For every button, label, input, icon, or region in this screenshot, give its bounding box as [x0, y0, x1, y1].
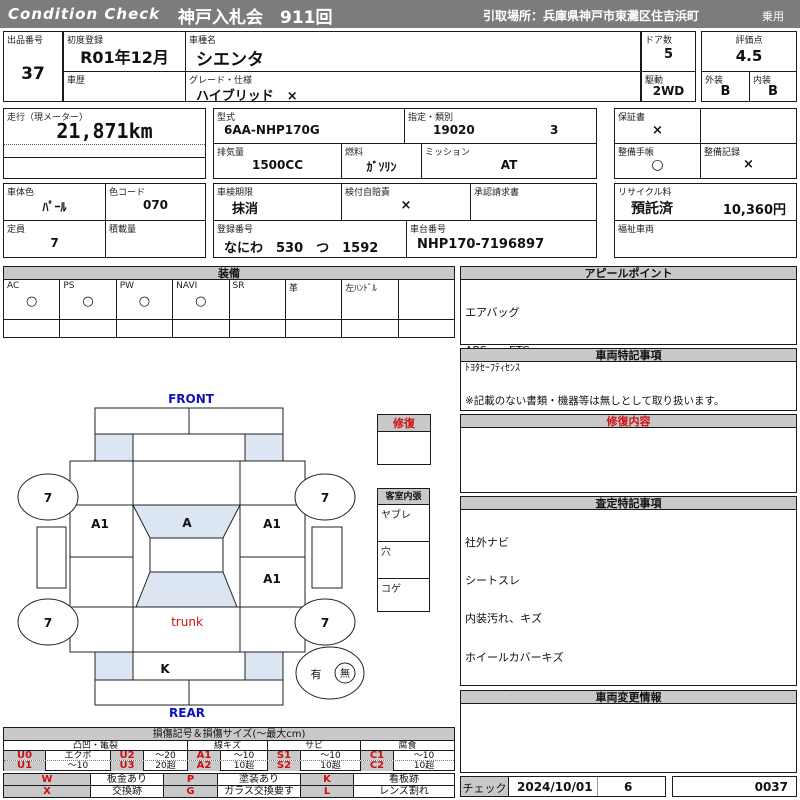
tire-size-fl: 7	[44, 491, 52, 505]
legend-desc: 看板跡	[354, 774, 454, 785]
interior-grade-box: 内装 B	[749, 71, 797, 102]
vehicle-category: 乗用	[762, 8, 784, 24]
spare-tire-marker	[296, 647, 364, 699]
sheet-number-box: 0037	[672, 776, 797, 797]
welfare-box: 福祉車両	[614, 220, 797, 258]
legend-group: 凸凹・亀裂	[4, 741, 188, 750]
damage-legend-row-1: U0 エクボ U2 ～20 A1 ～10 S1 ～10 C1 ～10	[4, 751, 454, 761]
cabin-interior-header: 客室内張	[378, 489, 429, 505]
vehicle-notes-footnote: ※記載のない書類・機器等は無しとして取り扱います。	[465, 393, 724, 408]
assessment-line: 社外ナビ	[465, 537, 792, 550]
model-code-box: 型式 6AA-NHP170G	[213, 108, 405, 144]
legend-code: U2	[111, 751, 144, 760]
left-side-step	[37, 527, 66, 588]
assessment-line: ホイールカバーキズ	[465, 652, 792, 665]
auction-sheet: Condition Check 神戸入札会 911回 引取場所：兵庫県神戸市東灘…	[0, 0, 800, 800]
inspection-label: 車検期限	[217, 185, 253, 198]
model-code-label: 型式	[217, 110, 235, 123]
sheet-number-value: 0037	[755, 780, 788, 794]
body-color-box: 車体色 ﾊﾟｰﾙ	[3, 183, 106, 221]
history-box: 車歴	[63, 71, 186, 102]
brand-logo: Condition Check	[8, 5, 160, 23]
recycle-status-value: 預託済	[631, 198, 673, 218]
equipment-label: PS	[63, 281, 74, 291]
legend-code: U0	[4, 751, 46, 760]
capacity-value: 7	[4, 236, 105, 250]
warranty-value: ×	[615, 123, 700, 138]
displacement-value: 1500CC	[214, 158, 341, 172]
maintenance-book-box: 整備手帳 ○	[614, 143, 701, 179]
front-pillar-left-shaded	[95, 434, 133, 461]
mileage-divider-solid	[4, 157, 205, 158]
interior-row-tear: ヤブレ	[378, 505, 429, 542]
equipment-value: ○	[173, 294, 228, 309]
equipment-table: 装備 AC ○ PS ○ PW ○ NAVI ○ SR 革	[3, 266, 455, 338]
equipment-cell-lhd: 左ﾊﾝﾄﾞﾙ	[342, 280, 398, 319]
damage-legend-title: 損傷記号＆損傷サイズ(～最大cm)	[4, 728, 454, 741]
displacement-box: 排気量 1500CC	[213, 143, 342, 179]
capacity-box: 定員 7	[3, 220, 106, 258]
rear-pillar-right-shaded	[245, 652, 283, 680]
registration-number-box: 登録番号 なにわ 530 つ 1592	[213, 220, 407, 258]
legend-desc: 交換跡	[91, 786, 164, 797]
check-date-value: 2024/10/01	[517, 780, 593, 794]
equipment-label: PW	[120, 281, 134, 291]
mileage-divider-dotted	[4, 144, 205, 145]
body-color-label: 車体色	[7, 185, 34, 198]
registration-number-value: なにわ 530 つ 1592	[224, 237, 378, 256]
class-box: 指定・類別 19020 3	[404, 108, 597, 144]
left-front-door-mark: A1	[91, 517, 109, 531]
hood	[133, 434, 245, 461]
rear-window-area	[136, 572, 237, 607]
spare-yes-label: 有	[311, 667, 322, 681]
color-code-value: 070	[106, 198, 205, 212]
right-rear-door-mark: A1	[263, 572, 281, 586]
recycle-fee-label: リサイクル料	[618, 185, 672, 198]
change-info-section: 車両変更情報	[460, 690, 797, 773]
legend-desc: 塗装あり	[218, 774, 301, 785]
legend-desc: 10超	[301, 761, 361, 771]
legend-desc: 板金あり	[91, 774, 164, 785]
check-inspector-value: 6	[624, 780, 632, 794]
trunk-label: trunk	[171, 615, 203, 629]
doors-box: ドア数 5	[641, 31, 696, 72]
assessment-notes-section: 査定特記事項 社外ナビ シートスレ 内装汚れ、キズ ホイールカバーキズ パンク修…	[460, 496, 797, 686]
equipment-label: 左ﾊﾝﾄﾞﾙ	[345, 281, 377, 294]
approval-label: 承認請求書	[474, 185, 519, 198]
right-front-door-mark: A1	[263, 517, 281, 531]
class-label: 指定・類別	[408, 110, 453, 123]
chassis-number-label: 車台番号	[410, 222, 446, 235]
legend-code: W	[4, 774, 91, 785]
legend-group: 線キズ	[188, 741, 268, 750]
exterior-grade-box: 外装 B	[701, 71, 750, 102]
legend-code: S1	[268, 751, 301, 760]
vehicle-notes-header: 車両特記事項	[461, 349, 796, 362]
transmission-box: ミッション AT	[421, 143, 597, 179]
legend-code: L	[301, 786, 354, 797]
tire-size-rr: 7	[321, 616, 329, 630]
lot-number-box: 出品番号 37	[3, 31, 63, 102]
inspection-value: 抹消	[232, 198, 258, 217]
legend-desc: レンズ割れ	[354, 786, 454, 797]
rear-label: REAR	[169, 706, 205, 720]
mileage-box: 走行（現メーター） 21,871km	[3, 108, 206, 179]
mileage-value: 21,871km	[4, 119, 205, 143]
vehicle-notes-section: 車両特記事項 ﾄﾖﾀｾｰﾌﾃｨｾﾝｽ ※記載のない書類・機器等は無しとして取り扱…	[460, 348, 797, 411]
model-value: シエンタ	[196, 45, 264, 70]
windshield-mark: A	[182, 516, 192, 530]
equipment-cell-ps: PS ○	[60, 280, 116, 319]
roof-area	[150, 538, 223, 572]
rear-pillar-left-shaded	[95, 652, 133, 680]
inspection-box: 車検期限 抹消	[213, 183, 342, 221]
legend-code: K	[301, 774, 354, 785]
grade-value: ハイブリッド ×	[196, 85, 298, 104]
equipment-row-2	[4, 319, 454, 338]
legend-code: C1	[361, 751, 394, 760]
body-color-value: ﾊﾟｰﾙ	[4, 198, 105, 215]
load-box: 積載量	[105, 220, 206, 258]
legend-code: C2	[361, 761, 394, 771]
capacity-label: 定員	[7, 222, 25, 235]
drive-value: 2WD	[642, 84, 695, 98]
legend-desc: 10超	[394, 761, 454, 771]
damage-legend-table: 損傷記号＆損傷サイズ(～最大cm) 凸凹・亀裂 線キズ サビ 腐食 U0 エクボ…	[3, 727, 455, 771]
class-value-1: 19020	[433, 123, 475, 137]
class-value-2: 3	[550, 123, 558, 137]
insurance-value: ×	[342, 198, 470, 213]
assessment-line: シートスレ	[465, 575, 792, 588]
appeal-points-header: アピールポイント	[461, 267, 796, 280]
doors-label: ドア数	[645, 33, 672, 46]
vehicle-notes-line: ﾄﾖﾀｾｰﾌﾃｨｾﾝｽ	[461, 362, 796, 377]
legend-code: U3	[111, 761, 144, 771]
equipment-value: ○	[117, 294, 172, 309]
auction-title: 神戸入札会 911回	[178, 3, 333, 28]
history-label: 車歴	[67, 73, 85, 86]
registration-number-label: 登録番号	[217, 222, 253, 235]
recycle-fee-box: リサイクル料 預託済 10,360円	[614, 183, 797, 221]
legend-code: S2	[268, 761, 301, 771]
equipment-value: ○	[60, 294, 115, 309]
interior-row-burn: コゲ	[378, 579, 429, 613]
fuel-label: 燃料	[345, 145, 363, 158]
insurance-box: 検付自賠責 ×	[341, 183, 471, 221]
check-label-box: チェック	[460, 776, 509, 797]
spare-no-label: 無	[340, 667, 350, 680]
rear-panel-mark: K	[160, 662, 170, 676]
change-info-header: 車両変更情報	[461, 691, 796, 704]
legend-code: P	[164, 774, 218, 785]
approval-box: 承認請求書	[470, 183, 597, 221]
warranty-box: 保証書 ×	[614, 108, 701, 144]
legend-code: X	[4, 786, 91, 797]
appeal-line: エアバッグ	[465, 307, 792, 320]
equipment-label: SR	[233, 281, 245, 291]
transmission-value: AT	[422, 158, 596, 172]
legend-desc: ～10	[394, 751, 454, 760]
score-box: 評価点 4.5	[701, 31, 797, 72]
check-label: チェック	[461, 780, 508, 796]
equipment-label: AC	[7, 281, 19, 291]
tire-size-fr: 7	[321, 491, 329, 505]
displacement-label: 排気量	[217, 145, 244, 158]
drive-box: 駆動 2WD	[641, 71, 696, 102]
legend-desc: ～10	[301, 751, 361, 760]
first-registration-value: R01年12月	[64, 44, 185, 68]
insurance-label: 検付自賠責	[345, 185, 390, 198]
warranty-label: 保証書	[618, 110, 645, 123]
legend-desc: ～10	[46, 761, 111, 771]
right-side-step	[312, 527, 342, 588]
equipment-header: 装備	[4, 267, 454, 280]
warranty-extra-box	[700, 108, 797, 144]
load-label: 積載量	[109, 222, 136, 235]
assessment-line: 内装汚れ、キズ	[465, 613, 792, 626]
score-value: 4.5	[702, 47, 796, 65]
front-label: FRONT	[168, 392, 215, 406]
recycle-fee-value: 10,360円	[723, 199, 786, 218]
legend-code: A2	[188, 761, 221, 771]
legend-desc: 10超	[221, 761, 268, 771]
assessment-notes-header: 査定特記事項	[461, 497, 796, 510]
damage-legend-table-2: W 板金あり P 塗装あり K 看板跡 X 交換跡 G ガラス交換要す L レン…	[3, 773, 455, 798]
damage-legend-groups: 凸凹・亀裂 線キズ サビ 腐食	[4, 741, 454, 751]
equipment-cell-ac: AC ○	[4, 280, 60, 319]
maintenance-record-value: ×	[701, 157, 796, 172]
transmission-label: ミッション	[425, 145, 470, 158]
check-date-box: 2024/10/01 6	[508, 776, 666, 797]
legend-code: U1	[4, 761, 46, 771]
front-pillar-right-shaded	[245, 434, 283, 461]
chassis-number-box: 車台番号 NHP170-7196897	[406, 220, 597, 258]
lot-number-value: 37	[4, 64, 62, 84]
legend-group: サビ	[268, 741, 361, 750]
legend-code: A1	[188, 751, 221, 760]
cabin-interior-box: 客室内張 ヤブレ 穴 コゲ	[377, 488, 430, 612]
legend-desc: ガラス交換要す	[218, 786, 301, 797]
appeal-points-section: アピールポイント エアバッグ ABS ETC プッシュスタート 左側パワースライ…	[460, 266, 797, 345]
equipment-cell-extra	[399, 280, 454, 319]
damage-legend-row-2: U1 ～10 U3 20超 A2 10超 S2 10超 C2 10超	[4, 761, 454, 771]
maintenance-record-box: 整備記録 ×	[700, 143, 797, 179]
equipment-cell-leather: 革	[286, 280, 342, 319]
equipment-value: ○	[4, 294, 59, 309]
welfare-label: 福祉車両	[618, 222, 654, 235]
equipment-row-1: AC ○ PS ○ PW ○ NAVI ○ SR 革 左ﾊﾝﾄﾞﾙ	[4, 280, 454, 319]
chassis-number-value: NHP170-7196897	[417, 237, 544, 252]
model-box: 車種名 シエンタ	[185, 31, 641, 72]
grade-box: グレード・仕様 ハイブリッド ×	[185, 71, 641, 102]
equipment-label: 革	[289, 281, 298, 294]
check-divider	[597, 777, 598, 796]
repair-content-header: 修復内容	[461, 415, 796, 428]
legend-code: G	[164, 786, 218, 797]
damage-legend2-row-2: X 交換跡 G ガラス交換要す L レンズ割れ	[4, 786, 454, 797]
exterior-grade-value: B	[702, 84, 749, 99]
pickup-location: 引取場所：兵庫県神戸市東灘区住吉浜町	[483, 7, 699, 24]
lot-number-label: 出品番号	[7, 33, 43, 46]
equipment-cell-navi: NAVI ○	[173, 280, 229, 319]
equipment-label: NAVI	[176, 281, 197, 291]
equipment-cell-pw: PW ○	[117, 280, 173, 319]
fuel-value: ｶﾞｿﾘﾝ	[342, 158, 421, 175]
repair-mini-header: 修復	[378, 415, 430, 432]
tire-size-rl: 7	[44, 616, 52, 630]
color-code-label: 色コード	[109, 185, 145, 198]
legend-desc: ～10	[221, 751, 268, 760]
fuel-box: 燃料 ｶﾞｿﾘﾝ	[341, 143, 422, 179]
doors-value: 5	[642, 47, 695, 62]
title-bar: Condition Check 神戸入札会 911回 引取場所：兵庫県神戸市東灘…	[0, 0, 800, 28]
maintenance-book-value: ○	[615, 157, 700, 173]
legend-desc: ～20	[144, 751, 188, 760]
repair-content-section: 修復内容	[460, 414, 797, 493]
first-registration-box: 初度登録 R01年12月	[63, 31, 186, 72]
legend-desc: エクボ	[46, 751, 111, 760]
damage-legend2-row-1: W 板金あり P 塗装あり K 看板跡	[4, 774, 454, 786]
color-code-box: 色コード 070	[105, 183, 206, 221]
interior-row-hole: 穴	[378, 542, 429, 579]
legend-group: 腐食	[361, 741, 454, 750]
repair-mini-box: 修復	[377, 414, 431, 465]
legend-desc: 20超	[144, 761, 188, 771]
equipment-cell-sr: SR	[230, 280, 286, 319]
model-code-value: 6AA-NHP170G	[224, 123, 320, 137]
interior-grade-value: B	[750, 84, 796, 99]
score-label: 評価点	[702, 33, 796, 46]
